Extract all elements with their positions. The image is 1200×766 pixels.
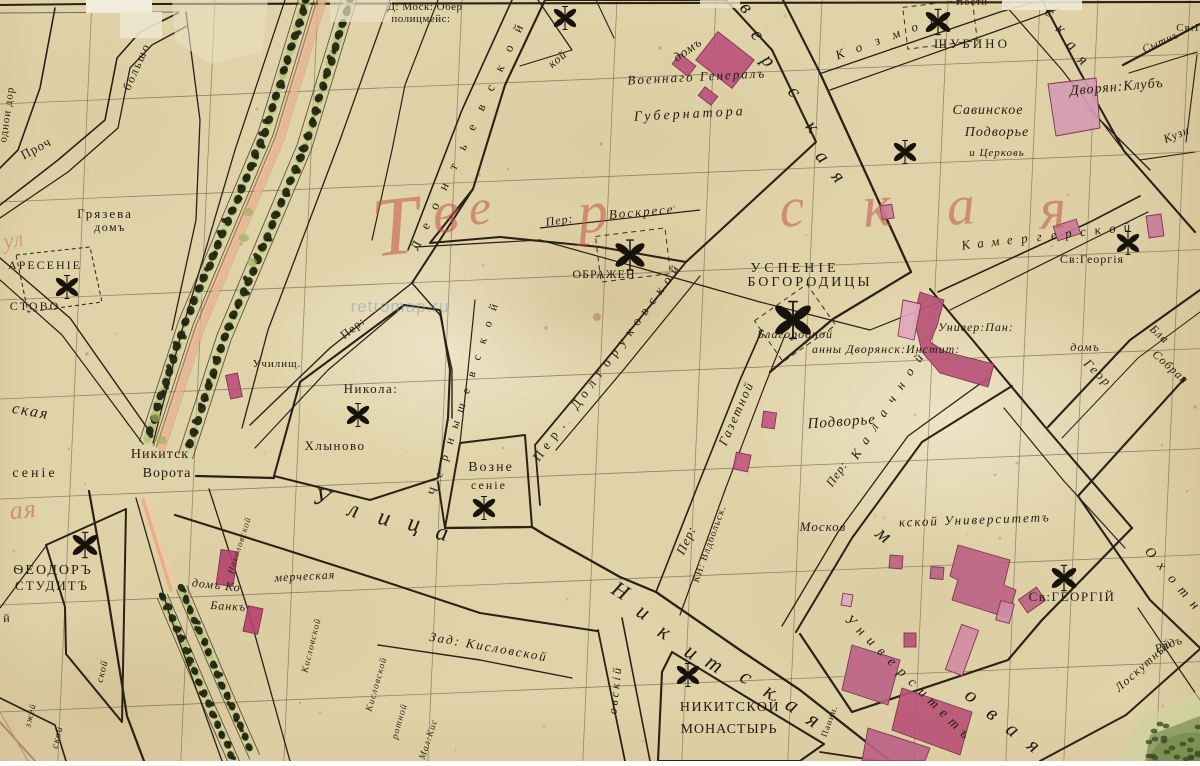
svg-text:Банкъ: Банкъ (209, 598, 247, 614)
svg-text:Училищ.: Училищ. (253, 358, 302, 370)
svg-text:БОГОРОДИЦЫ: БОГОРОДИЦЫ (747, 275, 872, 290)
svg-text:Савинское: Савинское (953, 103, 1024, 118)
svg-text:СТУДИТЪ: СТУДИТЪ (15, 578, 89, 593)
svg-text:сеніе: сеніе (12, 466, 57, 481)
svg-text:Никитск: Никитск (131, 447, 189, 462)
svg-text:ШУБИНО: ШУБИНО (934, 36, 1010, 51)
svg-text:ая: ая (8, 494, 38, 526)
svg-text:УСПЕНІЕ: УСПЕНІЕ (750, 261, 839, 276)
svg-text:Постн: Постн (956, 0, 988, 8)
svg-text:е: е (467, 178, 493, 235)
svg-text:Возне: Возне (468, 460, 514, 475)
svg-text:домъ: домъ (1070, 340, 1100, 354)
svg-text:Хлыново: Хлыново (304, 438, 365, 453)
svg-text:и Церковь: и Церковь (969, 147, 1025, 159)
svg-text:Москов: Москов (799, 519, 847, 534)
svg-text:Никола:: Никола: (344, 381, 399, 396)
svg-text:с: с (777, 176, 806, 240)
svg-text:а: а (945, 174, 977, 238)
svg-text:ОБРАЖЕН: ОБРАЖЕН (572, 267, 635, 281)
svg-text:анны Дворянск:Инстит:: анны Дворянск:Инстит: (812, 342, 960, 356)
svg-text:Д: Моск: Обер: Д: Моск: Обер (388, 1, 463, 13)
svg-text:МОНАСТЫРЬ: МОНАСТЫРЬ (680, 722, 777, 737)
svg-text:Грязева: Грязева (77, 206, 133, 221)
svg-text:сеніе: сеніе (471, 478, 507, 492)
svg-text:Св:ГЕОРГІЙ: Св:ГЕОРГІЙ (1029, 589, 1116, 604)
svg-text:НИКИТСКОЙ: НИКИТСКОЙ (680, 698, 780, 715)
svg-text:Универ:Пан:: Универ:Пан: (938, 320, 1014, 334)
svg-text:Св:Георгія: Св:Георгія (1060, 252, 1124, 266)
svg-text:к: к (860, 172, 894, 240)
svg-text:й: й (3, 611, 10, 625)
svg-text:полицмейс:: полицмейс: (391, 13, 450, 25)
svg-text:ѲЕОДОРЪ: ѲЕОДОРЪ (13, 563, 92, 578)
svg-text:СТОВО: СТОВО (10, 299, 61, 313)
svg-text:Св:П: Св:П (1176, 22, 1200, 34)
svg-text:Ворота: Ворота (143, 466, 192, 481)
svg-text:Подворье: Подворье (964, 125, 1030, 140)
svg-text:retromap.ru: retromap.ru (351, 297, 450, 316)
svg-text:домъ: домъ (94, 220, 126, 234)
svg-text:Благородной: Благородной (756, 327, 833, 341)
svg-text:АРЕСЕНІЕ: АРЕСЕНІЕ (8, 258, 82, 272)
